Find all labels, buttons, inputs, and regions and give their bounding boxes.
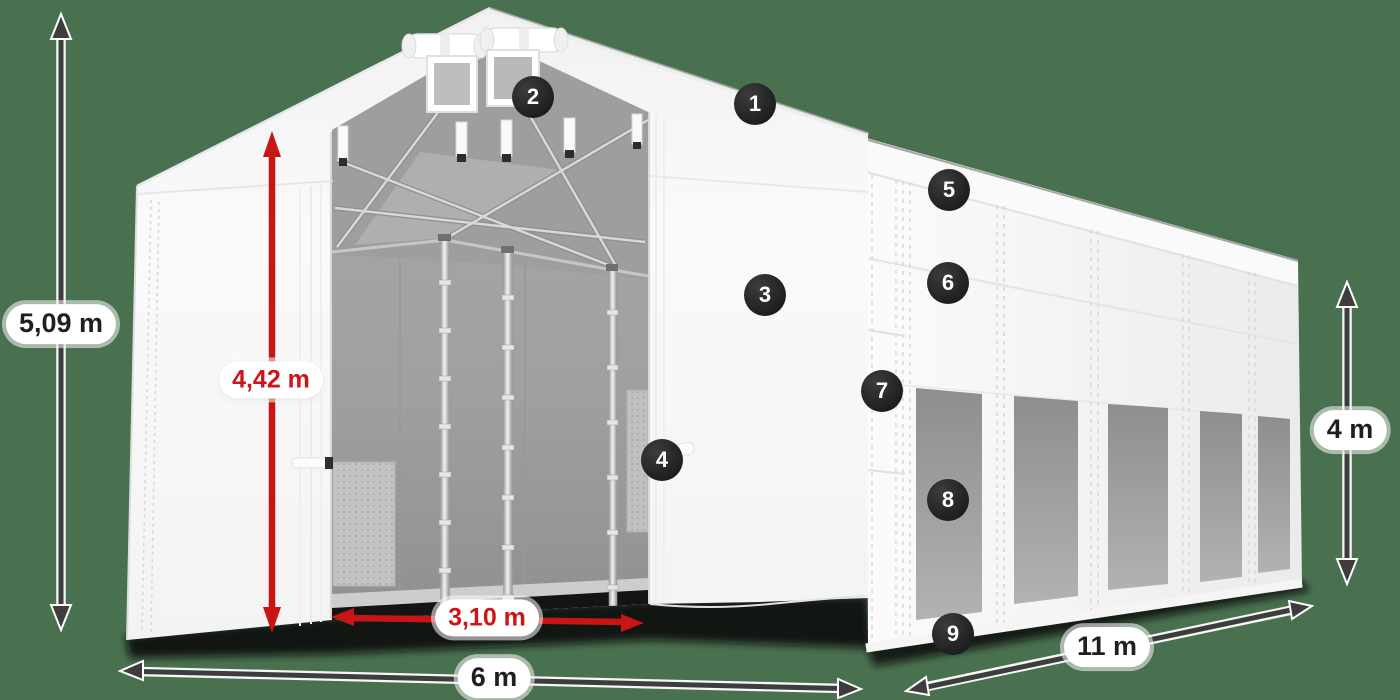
side-window-5 — [1258, 416, 1290, 573]
badge-3: 3 — [744, 274, 786, 316]
badge-8: 8 — [927, 479, 969, 521]
badge-4: 4 — [641, 439, 683, 481]
dimension-label-side-length: 11 m — [1064, 627, 1150, 667]
entrance-opening — [325, 30, 655, 650]
side-window-2 — [1014, 396, 1078, 604]
side-window-3 — [1108, 404, 1168, 590]
tent-illustration — [0, 0, 1400, 700]
side-wall — [866, 138, 1302, 650]
dimension-label-side-height: 4 m — [1314, 410, 1387, 450]
badge-5: 5 — [928, 169, 970, 211]
side-window-4 — [1200, 411, 1242, 582]
dimension-label-front-width: 6 m — [458, 658, 531, 698]
dimension-label-entrance-height: 4,42 m — [219, 361, 323, 398]
tie-strap — [292, 458, 328, 468]
badge-9: 9 — [932, 613, 974, 655]
product-diagram-stage: 1 2 3 4 5 6 7 8 9 5,09 m 4,42 m 3,10 m 6… — [0, 0, 1400, 700]
badge-1: 1 — [734, 83, 776, 125]
dimension-label-entrance-width: 3,10 m — [435, 599, 539, 636]
badge-7: 7 — [861, 370, 903, 412]
dimension-label-total-height: 5,09 m — [6, 304, 116, 344]
badge-6: 6 — [927, 262, 969, 304]
badge-2: 2 — [512, 76, 554, 118]
